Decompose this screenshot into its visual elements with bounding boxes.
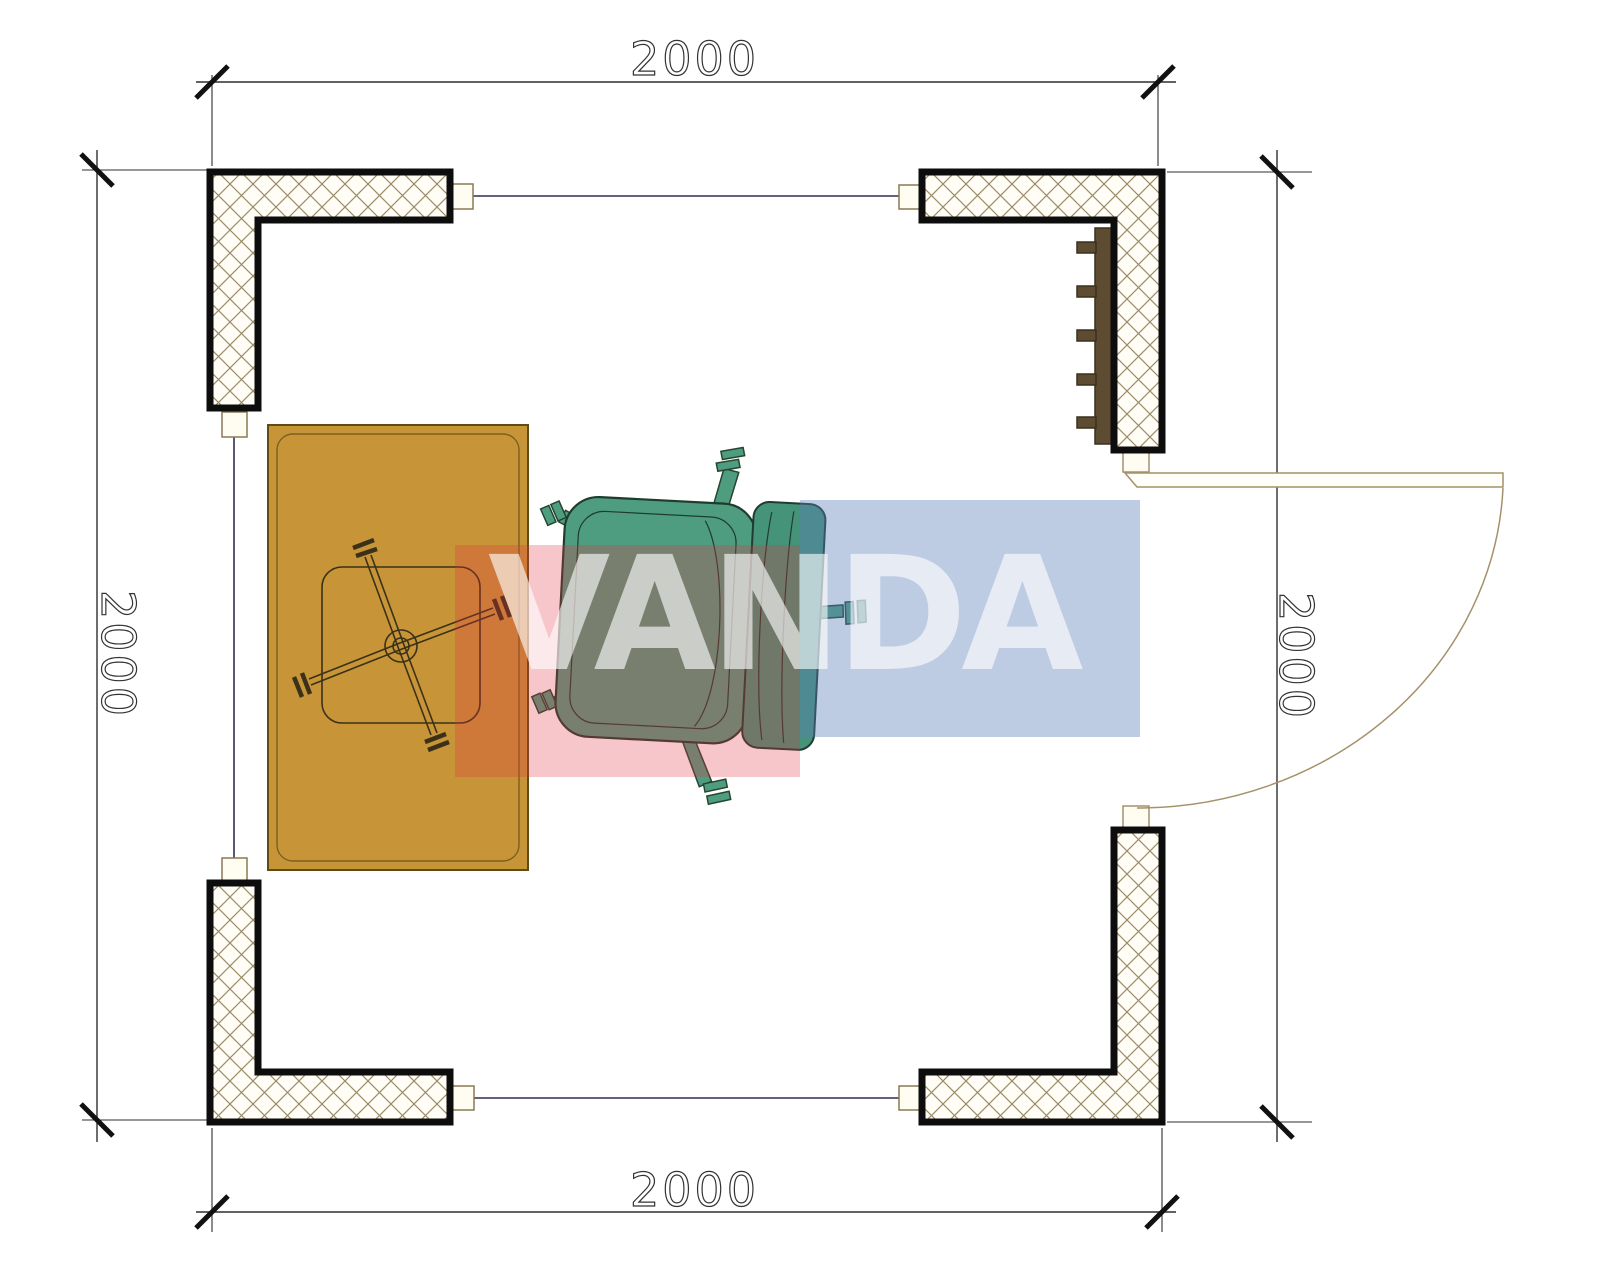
- radiator-fin: [1077, 417, 1096, 428]
- dimension-bottom: 2000: [196, 1128, 1178, 1232]
- radiator-fin: [1077, 286, 1096, 297]
- floor-plan-drawing: 2000 2000 2000 2000: [0, 0, 1600, 1280]
- door-jamb-bottom: [1123, 806, 1149, 828]
- wall-bottom-left: [210, 883, 450, 1122]
- office-chair: [526, 437, 875, 812]
- desk: [268, 425, 528, 870]
- door-leaf: [1125, 473, 1503, 487]
- radiator-fin: [1077, 374, 1096, 385]
- dimension-bottom-label: 2000: [630, 1163, 759, 1217]
- dimension-left-label: 2000: [91, 590, 145, 719]
- radiator-fin: [1077, 242, 1096, 253]
- radiator-body: [1095, 228, 1113, 444]
- dimension-top: 2000: [196, 32, 1176, 166]
- dimension-left: 2000: [81, 150, 207, 1142]
- wall-top-left: [210, 172, 450, 408]
- dimension-top-label: 2000: [630, 32, 759, 86]
- dimension-right: 2000: [1167, 150, 1323, 1142]
- radiator-fin: [1077, 330, 1096, 341]
- radiator: [1077, 228, 1113, 444]
- floor-plan-canvas: 2000 2000 2000 2000: [0, 0, 1600, 1280]
- dimension-right-label: 2000: [1269, 592, 1323, 721]
- wall-bottom-right: [922, 830, 1162, 1122]
- wall-top-right: [922, 172, 1162, 450]
